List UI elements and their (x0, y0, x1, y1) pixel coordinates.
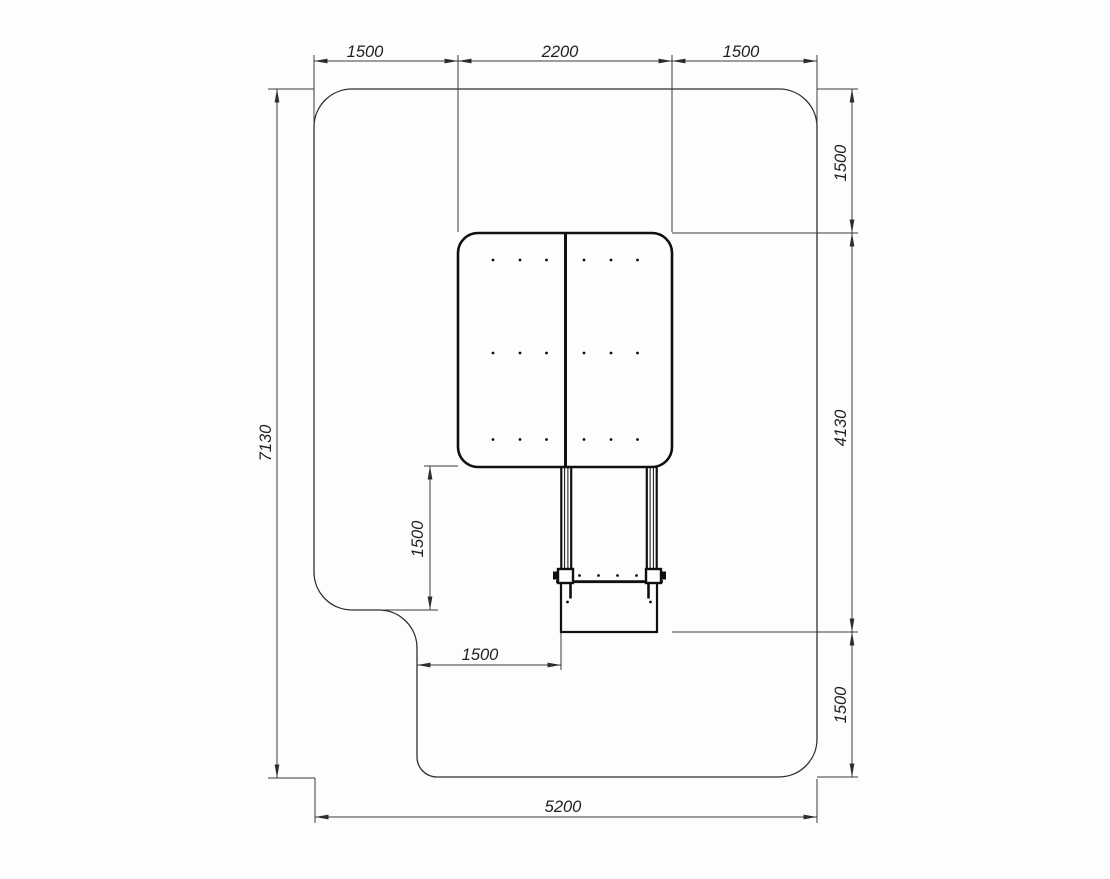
dim-label-bottom-overall: 5200 (545, 798, 583, 816)
bolt-dot (610, 438, 613, 441)
leg-right (647, 467, 657, 569)
bolt-dot (583, 438, 586, 441)
bolt-dot (545, 352, 548, 355)
dim-arrowhead (314, 59, 328, 64)
dim-label-mid-vertical: 1500 (409, 520, 427, 558)
bolt-dot (519, 259, 522, 262)
dim-arrowhead (275, 765, 280, 779)
dim-arrowhead (850, 233, 855, 247)
dim-arrowhead (804, 815, 818, 820)
dim-arrowhead (850, 220, 855, 234)
dim-arrowhead (659, 59, 673, 64)
dim-label-left-overall: 7130 (257, 424, 275, 462)
bench-seat (561, 582, 657, 632)
dim-arrowhead (804, 59, 818, 64)
dim-arrowhead (458, 59, 472, 64)
bolt-dot (635, 574, 638, 577)
dim-arrowhead (315, 815, 329, 820)
dim-label-top-center: 2200 (541, 43, 580, 61)
dim-arrowhead (672, 59, 686, 64)
bolt-dot (492, 352, 495, 355)
dim-arrowhead (850, 619, 855, 633)
bolt-dot (545, 438, 548, 441)
bolt-dot (610, 259, 613, 262)
dim-label-mid-horizontal: 1500 (462, 646, 500, 664)
bolt-dot (636, 438, 639, 441)
dim-arrowhead (850, 764, 855, 778)
bolt-dot (610, 352, 613, 355)
drawing-sheet: 1500 2200 1500 1500 4130 1500 7130 1500 … (0, 0, 1110, 879)
dim-arrowhead (445, 59, 459, 64)
plan-drawing-svg: 1500 2200 1500 1500 4130 1500 7130 1500 … (0, 0, 1110, 879)
bolt-dot (583, 352, 586, 355)
bolt-dot (566, 601, 569, 604)
dim-arrowhead (850, 632, 855, 646)
bolt-dot (583, 259, 586, 262)
dim-label-right-lower: 1500 (832, 686, 850, 724)
panel-top-view (458, 233, 672, 467)
bolt-dot (636, 259, 639, 262)
dim-label-right-upper: 1500 (832, 144, 850, 182)
dim-arrowhead (275, 89, 280, 103)
dim-arrowhead (850, 89, 855, 103)
bolt-dot (545, 259, 548, 262)
bolt-dot (578, 574, 581, 577)
dim-label-top-right: 1500 (723, 43, 761, 61)
dim-arrowhead (428, 597, 433, 611)
clamp-body (558, 569, 573, 583)
bolt-dot (649, 601, 652, 604)
bolt-dot (616, 574, 619, 577)
dim-label-right-middle: 4130 (832, 409, 850, 447)
bolt-dot (492, 438, 495, 441)
bolt-dot (519, 438, 522, 441)
dim-arrowhead (428, 466, 433, 480)
dim-arrowhead (548, 663, 562, 668)
clamp-body (646, 569, 661, 583)
bolt-dot (492, 259, 495, 262)
dim-arrowhead (417, 663, 431, 668)
bolt-dot (519, 352, 522, 355)
leg-left (561, 467, 571, 569)
bolt-dot (597, 574, 600, 577)
bolt-dot (636, 352, 639, 355)
dim-label-top-left: 1500 (347, 43, 385, 61)
